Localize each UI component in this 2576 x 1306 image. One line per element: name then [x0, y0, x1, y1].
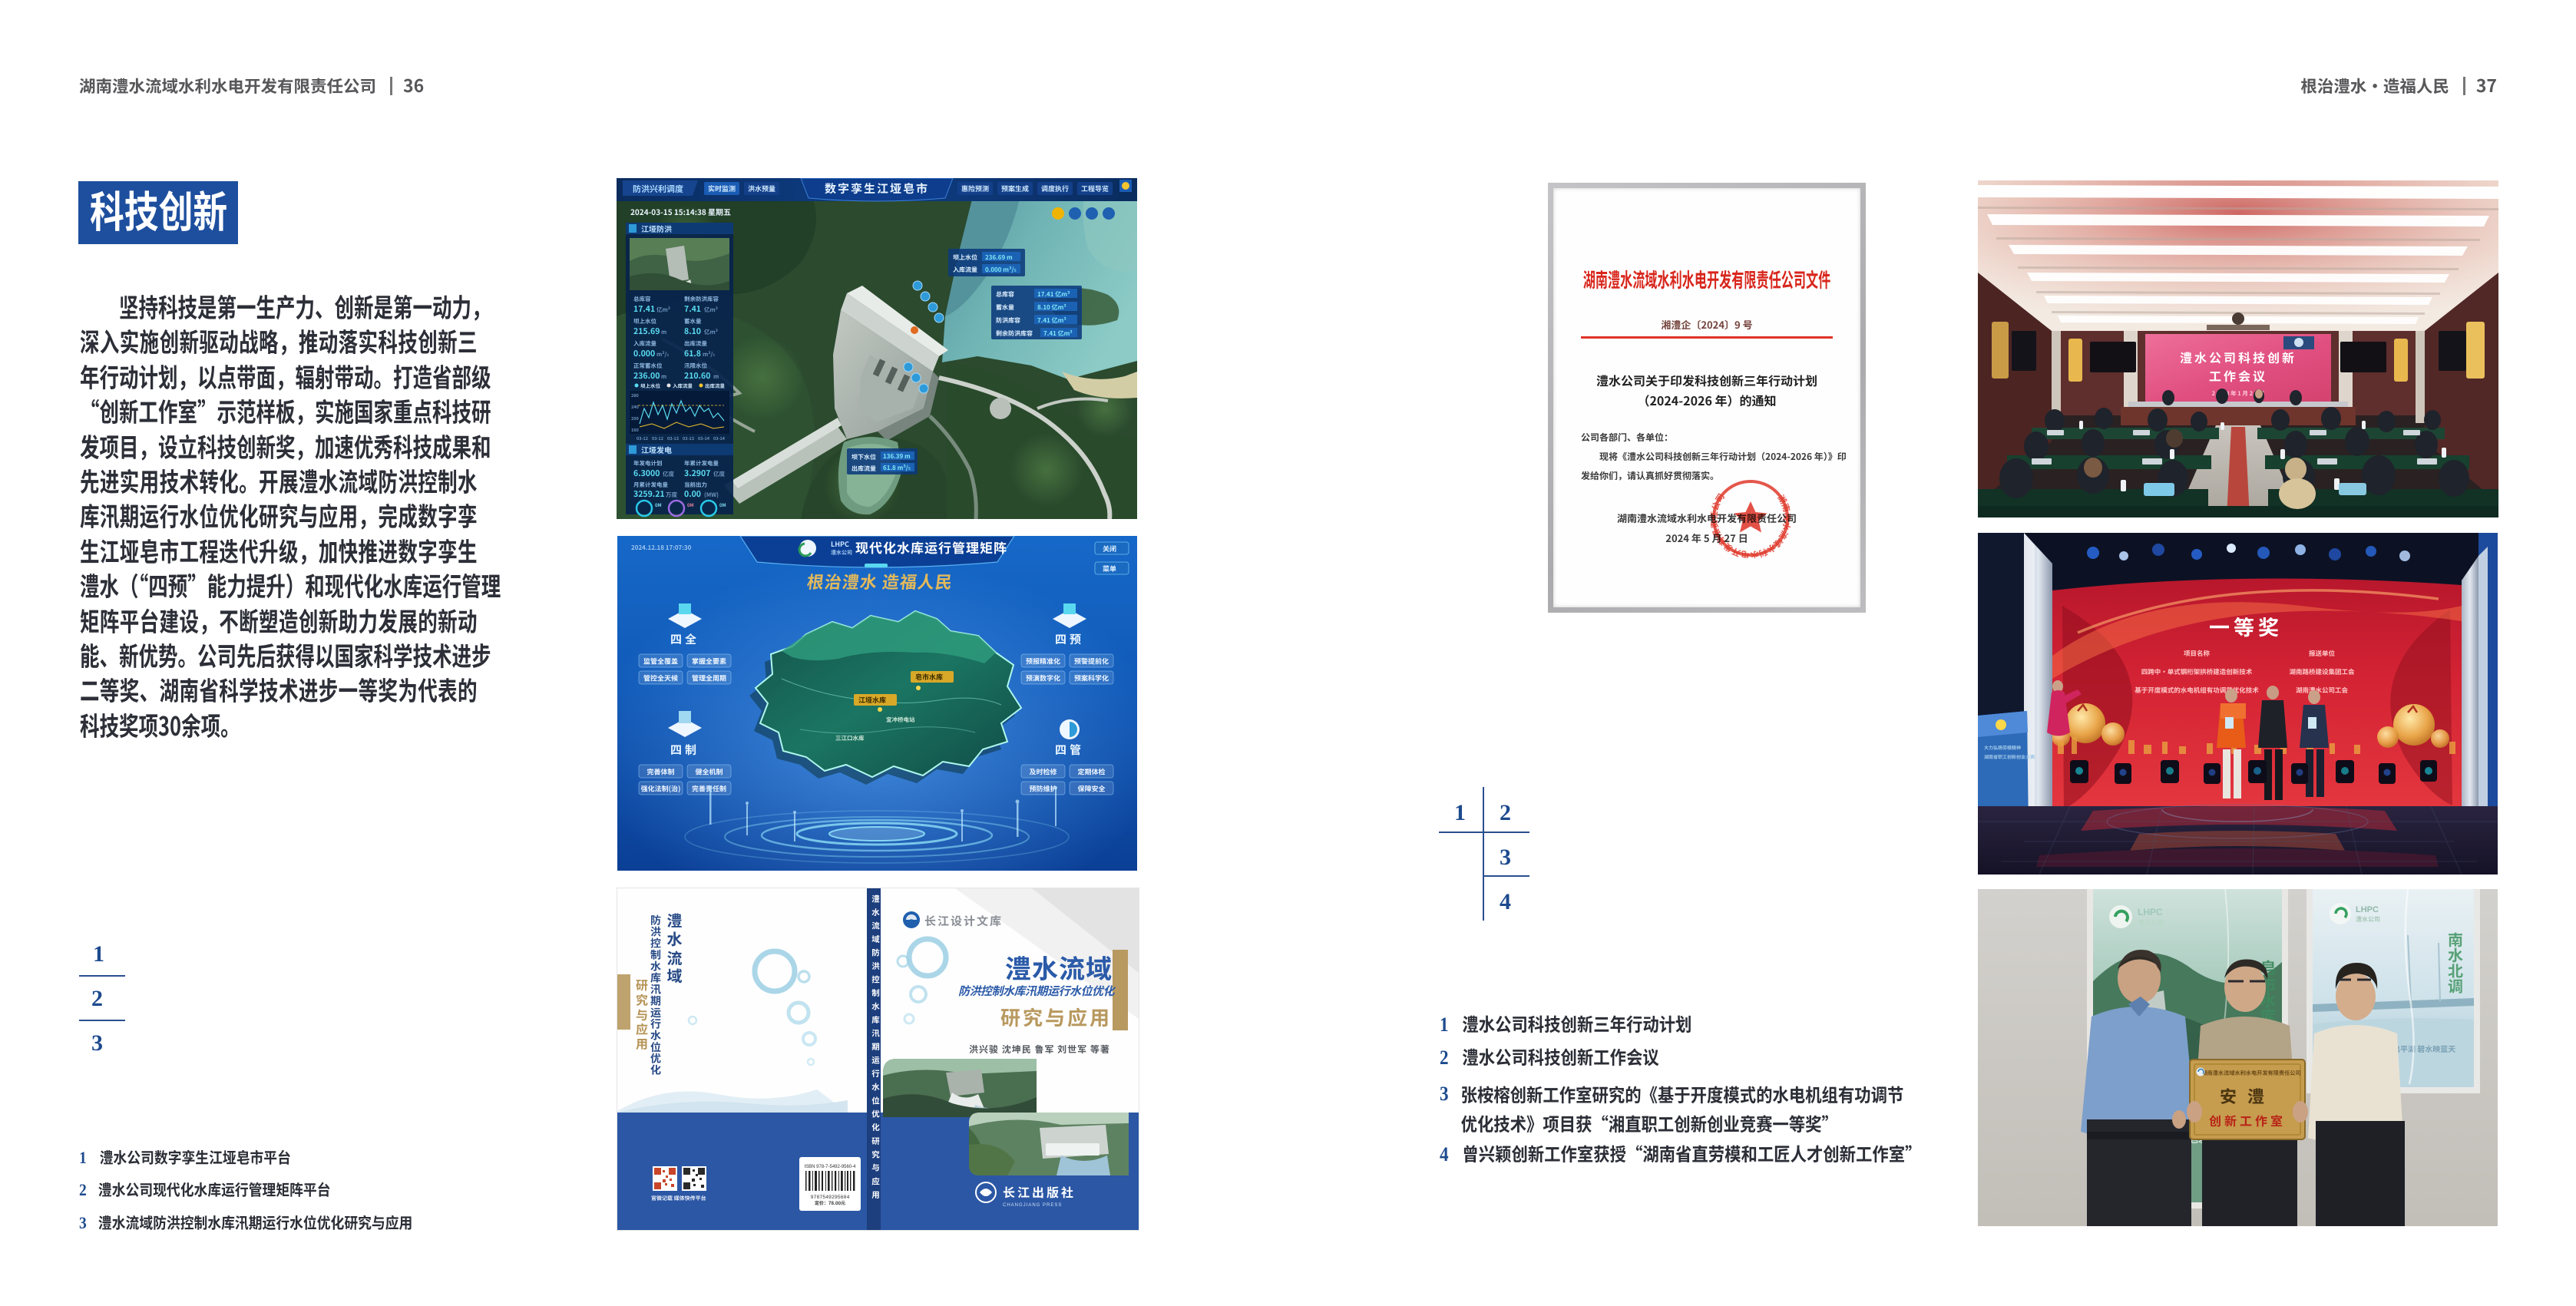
svg-text:240: 240 [631, 404, 639, 410]
svg-text:m: m [713, 372, 719, 381]
svg-text:136.39 m: 136.39 m [883, 452, 911, 461]
svg-text:防洪兴利调度: 防洪兴利调度 [633, 183, 683, 195]
svg-text:亿度: 亿度 [663, 470, 674, 478]
svg-text:防洪库容: 防洪库容 [996, 316, 1020, 325]
svg-text:大力弘扬劳模精神: 大力弘扬劳模精神 [1984, 744, 2021, 751]
svg-text:保障安全: 保障安全 [1077, 784, 1105, 794]
svg-text:根治澧水 造福人民: 根治澧水 造福人民 [805, 569, 954, 593]
svg-text:南水北调: 南水北调 [2445, 932, 2467, 994]
svg-text:工程导览: 工程导览 [1081, 184, 1109, 193]
svg-text:管理全周期: 管理全周期 [692, 673, 726, 683]
svg-text:3259.21: 3259.21 [633, 488, 665, 500]
svg-text:入库流量: 入库流量 [953, 266, 977, 274]
svg-text:定价：78.00元: 定价：78.00元 [815, 1199, 845, 1206]
svg-text:现代化水库运行管理矩阵: 现代化水库运行管理矩阵 [855, 537, 1007, 557]
svg-text:0.00: 0.00 [684, 488, 701, 500]
svg-text:预演数字化: 预演数字化 [1026, 673, 1060, 683]
svg-text:坝下水位: 坝下水位 [852, 453, 876, 461]
svg-text:2024.12.18 17:07:30: 2024.12.18 17:07:30 [631, 544, 692, 552]
svg-text:宜冲桥电站: 宜冲桥电站 [886, 716, 915, 724]
svg-text:m³/s: m³/s [656, 350, 669, 359]
svg-text:年发电计划: 年发电计划 [633, 459, 663, 468]
svg-text:预报精准化: 预报精准化 [1026, 656, 1060, 666]
svg-text:8.10 亿m³: 8.10 亿m³ [1037, 303, 1066, 312]
svg-text:总库容: 总库容 [633, 295, 651, 303]
svg-text:四跨中·单式钢桁架拱桥建造创新技术: 四跨中·单式钢桁架拱桥建造创新技术 [2141, 667, 2253, 676]
svg-text:定期体检: 定期体检 [1077, 767, 1105, 777]
svg-text:菜单: 菜单 [1103, 564, 1116, 574]
svg-text:03-14: 03-14 [713, 435, 726, 441]
svg-text:0.000 m³/s: 0.000 m³/s [985, 266, 1017, 274]
svg-text:实时监测: 实时监测 [708, 184, 736, 193]
svg-text:数字孪生江垭皂市: 数字孪生江垭皂市 [825, 180, 929, 197]
svg-text:年累计发电量: 年累计发电量 [684, 459, 719, 468]
svg-text:61.8 m³/s: 61.8 m³/s [883, 464, 911, 472]
svg-text:湖南路桥建设集团工会: 湖南路桥建设集团工会 [2289, 667, 2355, 676]
svg-text:澧水公司: 澧水公司 [2356, 915, 2380, 924]
svg-text:210.60: 210.60 [684, 370, 710, 382]
svg-text:完善体制: 完善体制 [646, 767, 674, 777]
svg-text:m: m [661, 372, 666, 381]
svg-text:长江出版社: 长江出版社 [1003, 1182, 1076, 1201]
svg-text:3.2907: 3.2907 [684, 468, 710, 479]
svg-text:四管: 四管 [1055, 742, 1084, 758]
svg-text:基于开度模式的水电机组有功调节优化技术: 基于开度模式的水电机组有功调节优化技术 [2135, 686, 2259, 695]
svg-text:皂市水库: 皂市水库 [915, 672, 943, 682]
svg-text:剩余防洪库容: 剩余防洪库容 [996, 329, 1033, 338]
svg-text:掌握全要素: 掌握全要素 [692, 656, 726, 666]
svg-text:预案生成: 预案生成 [1001, 184, 1029, 193]
svg-text:17.41: 17.41 [633, 303, 655, 315]
svg-text:管控全天候: 管控全天候 [643, 673, 678, 683]
svg-text:蓄水量: 蓄水量 [996, 303, 1014, 312]
svg-text:江垭水库: 江垭水库 [858, 695, 886, 705]
svg-text:61.8: 61.8 [684, 348, 701, 359]
svg-text:湖南省职工创新创业大赛: 湖南省职工创新创业大赛 [1984, 753, 2035, 760]
svg-text:亿度: 亿度 [713, 470, 725, 478]
svg-text:剩余防洪库容: 剩余防洪库容 [684, 295, 719, 303]
svg-text:(MW): (MW) [704, 491, 719, 499]
svg-text:监管全覆盖: 监管全覆盖 [643, 656, 678, 666]
svg-text:澧水公司科技创新: 澧水公司科技创新 [2180, 348, 2297, 366]
svg-text:入库流量: 入库流量 [673, 382, 693, 389]
svg-text:报送单位: 报送单位 [2309, 649, 2336, 658]
svg-text:创新工作室: 创新工作室 [2209, 1111, 2286, 1129]
svg-text:280: 280 [631, 392, 639, 398]
svg-text:m: m [661, 328, 666, 336]
svg-text:预警提前化: 预警提前化 [1074, 656, 1109, 666]
svg-text:03-13: 03-13 [667, 435, 679, 441]
svg-text:17.41 亿m³: 17.41 亿m³ [1037, 290, 1070, 299]
svg-text:四制: 四制 [670, 742, 699, 758]
svg-text:澧水公司: 澧水公司 [831, 549, 852, 557]
svg-text:0.000: 0.000 [633, 348, 655, 359]
svg-text:7.41 亿m³: 7.41 亿m³ [1037, 316, 1066, 325]
svg-text:入库流量: 入库流量 [633, 339, 656, 348]
svg-text:健全机制: 健全机制 [695, 767, 723, 777]
svg-text:洪水预量: 洪水预量 [748, 184, 775, 193]
svg-text:8.10: 8.10 [684, 326, 701, 337]
svg-text:出库流量: 出库流量 [852, 465, 876, 473]
svg-text:万度: 万度 [666, 491, 677, 499]
svg-text:坝上水位: 坝上水位 [640, 382, 661, 389]
svg-text:160: 160 [631, 427, 639, 433]
svg-text:ISBN 978-7-5492-9560-4: ISBN 978-7-5492-9560-4 [804, 1165, 856, 1169]
svg-text:调度执行: 调度执行 [1041, 184, 1069, 193]
svg-text:215.69: 215.69 [633, 326, 660, 337]
svg-text:惠险预测: 惠险预测 [961, 184, 989, 193]
svg-text:2024-03-15 15:14:38 星期五: 2024-03-15 15:14:38 星期五 [630, 206, 731, 217]
svg-text:预案科学化: 预案科学化 [1074, 673, 1109, 683]
svg-text:关闭: 关闭 [1103, 544, 1116, 554]
svg-text:CHANGJIANG PRESS: CHANGJIANG PRESS [1003, 1203, 1062, 1208]
svg-text:236.00: 236.00 [633, 370, 660, 382]
svg-text:四预: 四预 [1055, 631, 1084, 647]
svg-text:坝上水位: 坝上水位 [633, 317, 656, 326]
svg-text:正常蓄水位: 正常蓄水位 [633, 362, 663, 370]
svg-text:江垭发电: 江垭发电 [641, 444, 672, 455]
svg-text:出库流量: 出库流量 [705, 382, 726, 389]
svg-text:LHPC: LHPC [831, 539, 849, 549]
svg-text:工作会议: 工作会议 [2209, 366, 2267, 385]
svg-text:03-12: 03-12 [637, 435, 648, 441]
svg-text:出库流量: 出库流量 [684, 339, 707, 348]
svg-text:亿m³: 亿m³ [656, 306, 670, 314]
svg-text:03-14: 03-14 [698, 435, 710, 441]
svg-text:LHPC: LHPC [2138, 907, 2163, 918]
svg-text:三江口水库: 三江口水库 [835, 734, 865, 742]
svg-text:236.69 m: 236.69 m [985, 253, 1013, 262]
svg-text:江垭防洪: 江垭防洪 [641, 223, 672, 234]
svg-text:7.41 亿m³: 7.41 亿m³ [1043, 329, 1073, 338]
svg-text:项目名称: 项目名称 [2184, 649, 2211, 658]
svg-text:坝上水位: 坝上水位 [953, 253, 977, 262]
svg-text:四全: 四全 [670, 631, 699, 647]
svg-text:0M: 0M [687, 501, 694, 508]
svg-text:m³/s: m³/s [703, 350, 715, 359]
svg-text:亿m³: 亿m³ [704, 328, 718, 336]
svg-text:7.41: 7.41 [684, 303, 701, 315]
svg-text:0M: 0M [655, 501, 662, 508]
svg-text:LHPC: LHPC [2356, 905, 2379, 914]
svg-text:03-12: 03-12 [652, 435, 663, 441]
svg-text:0M: 0M [719, 501, 726, 508]
svg-text:总库容: 总库容 [996, 290, 1014, 299]
svg-text:澧水公司: 澧水公司 [2138, 918, 2164, 927]
svg-text:200: 200 [631, 415, 639, 422]
svg-text:预防维护: 预防维护 [1029, 784, 1057, 794]
svg-text:蓄水量: 蓄水量 [684, 317, 702, 326]
svg-text:一等奖: 一等奖 [2209, 611, 2283, 641]
svg-text:安澧: 安澧 [2220, 1083, 2275, 1108]
svg-text:湖南澧水流域水利水电开发有限责任公司: 湖南澧水流域水利水电开发有限责任公司 [2201, 1070, 2300, 1077]
svg-text:及时检修: 及时检修 [1029, 767, 1057, 777]
svg-text:湖南澧水公司工会: 湖南澧水公司工会 [2296, 686, 2349, 695]
svg-text:03-13: 03-13 [683, 435, 694, 441]
svg-text:亿m³: 亿m³ [704, 306, 718, 314]
svg-text:6.3000: 6.3000 [633, 468, 660, 479]
svg-text:强化法制(治): 强化法制(治) [641, 784, 681, 794]
svg-text:汛限水位: 汛限水位 [684, 362, 707, 370]
